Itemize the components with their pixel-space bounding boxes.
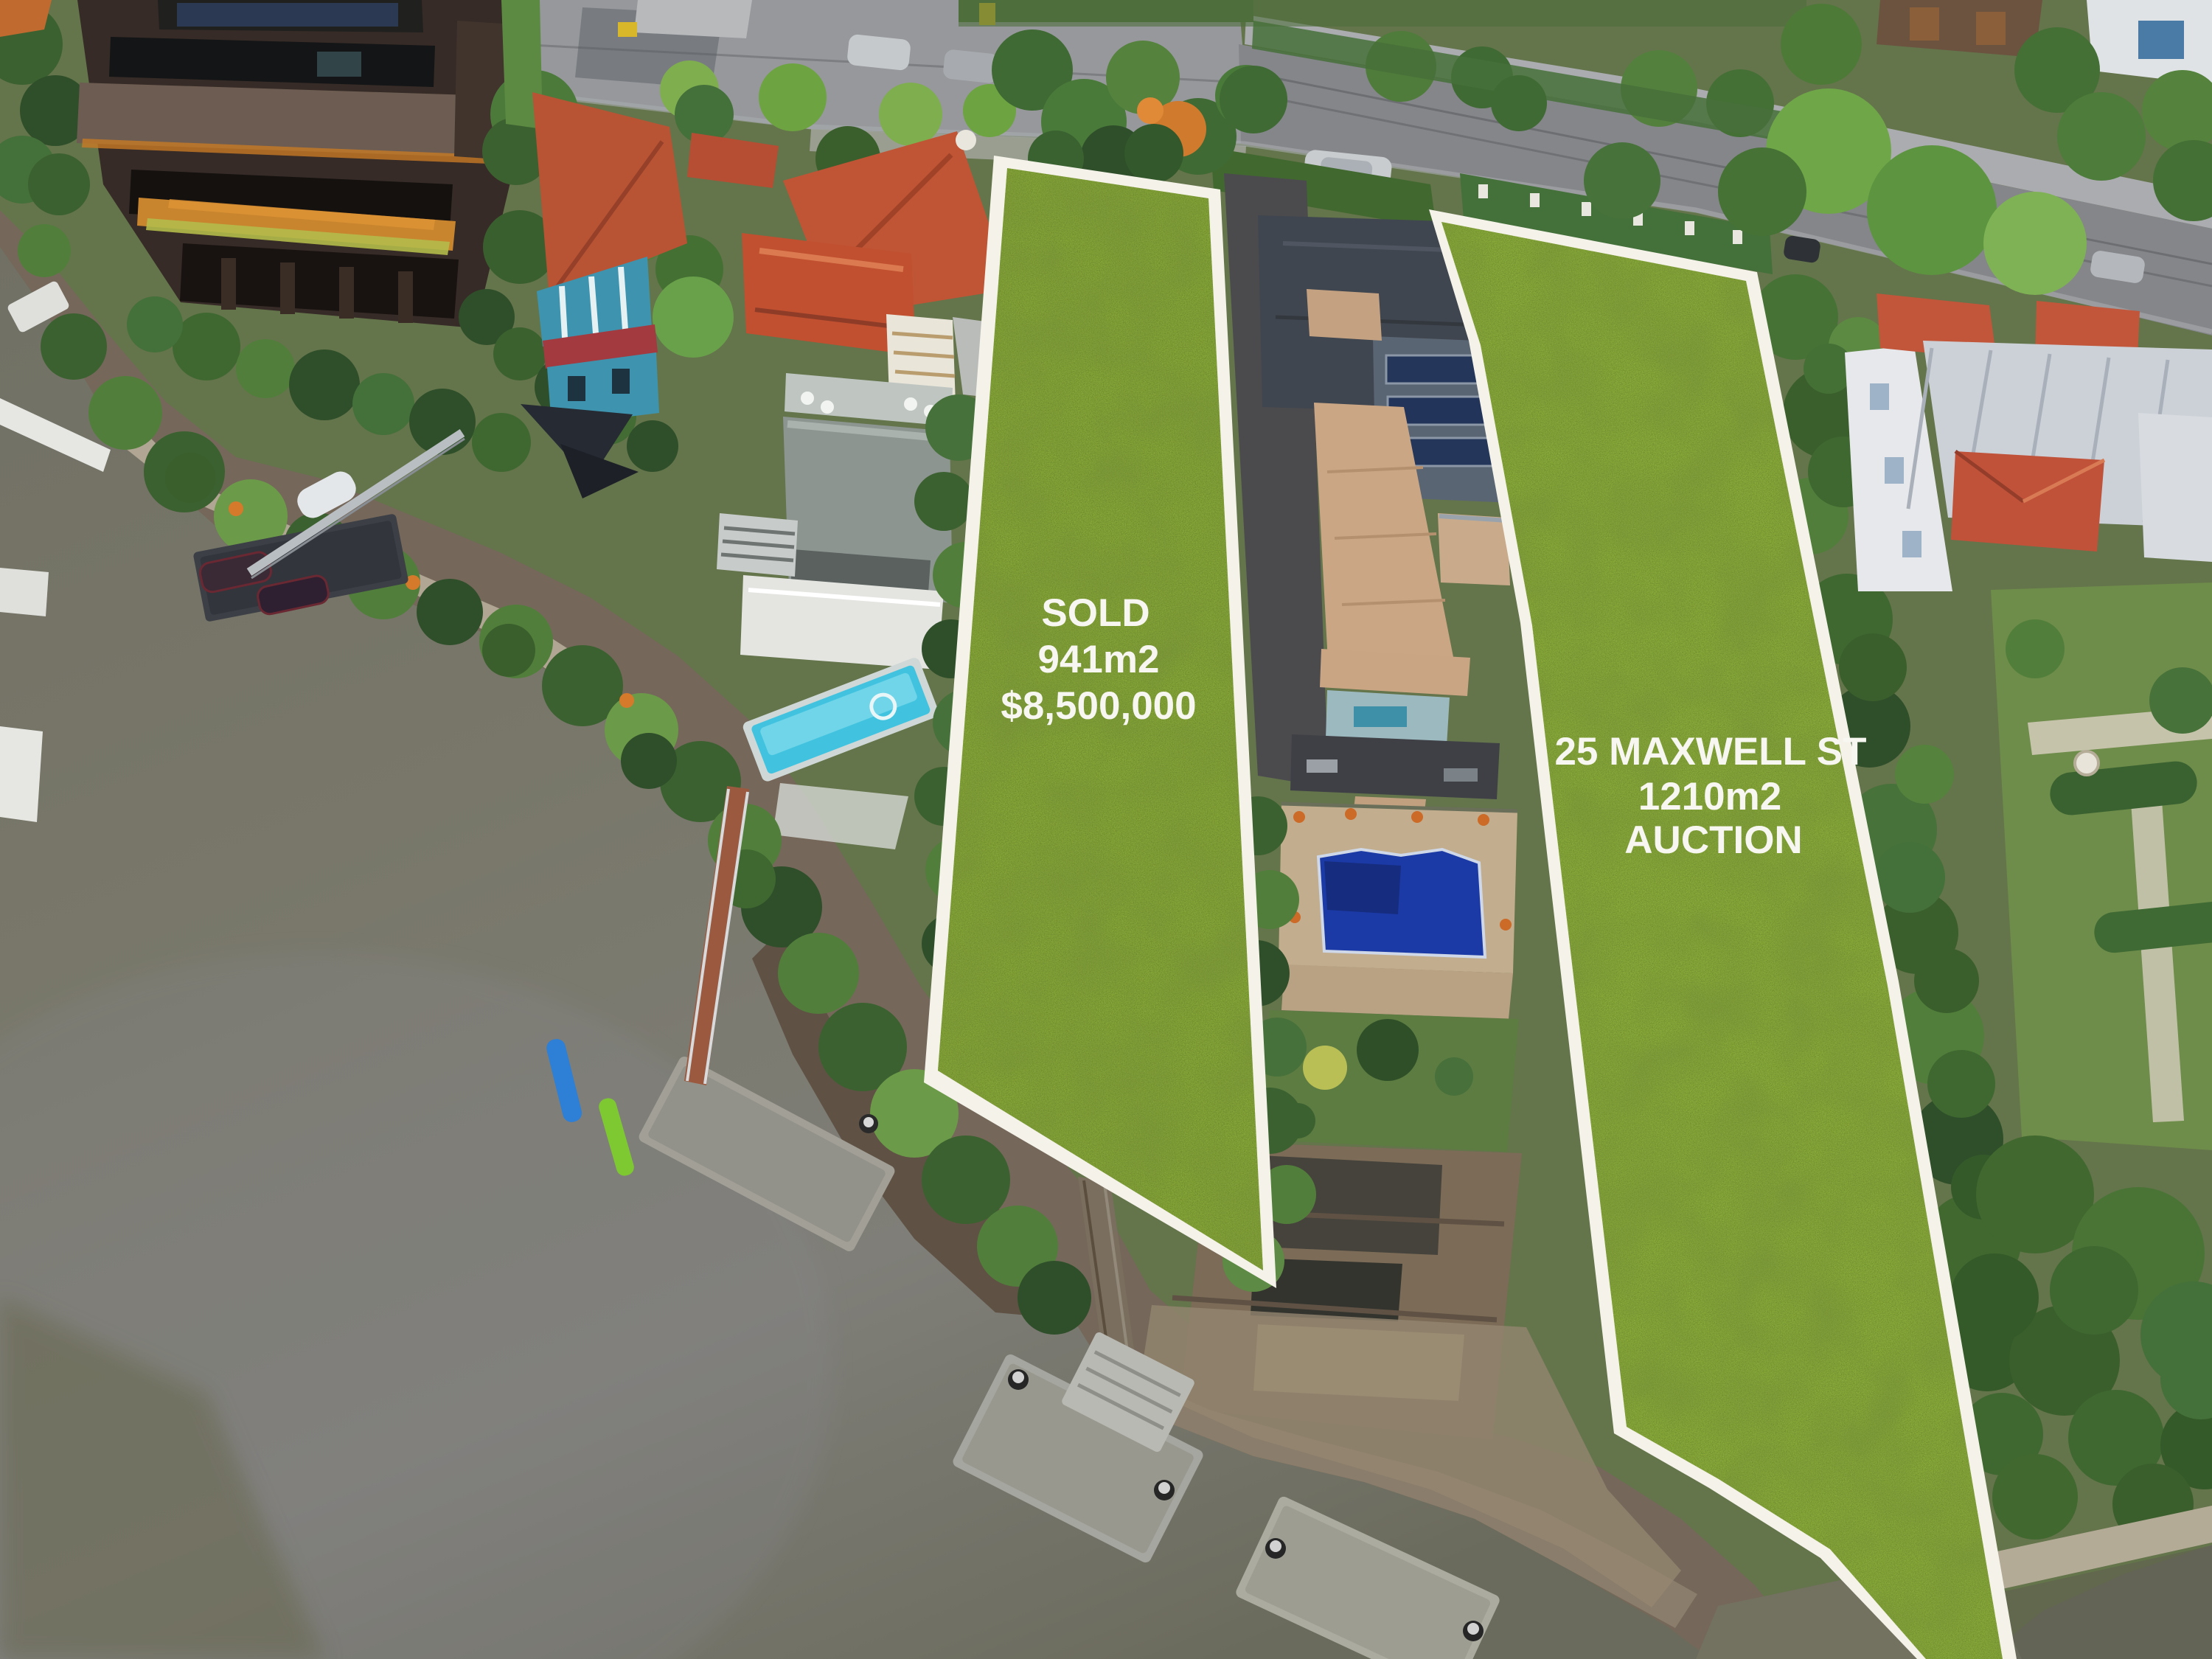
- svg-text:1210m2: 1210m2: [1638, 775, 1782, 818]
- svg-text:25 MAXWELL ST: 25 MAXWELL ST: [1554, 730, 1866, 773]
- svg-text:AUCTION: AUCTION: [1624, 818, 1802, 862]
- svg-text:SOLD: SOLD: [1041, 591, 1150, 635]
- svg-text:941m2: 941m2: [1037, 638, 1159, 681]
- svg-text:$8,500,000: $8,500,000: [1001, 684, 1196, 728]
